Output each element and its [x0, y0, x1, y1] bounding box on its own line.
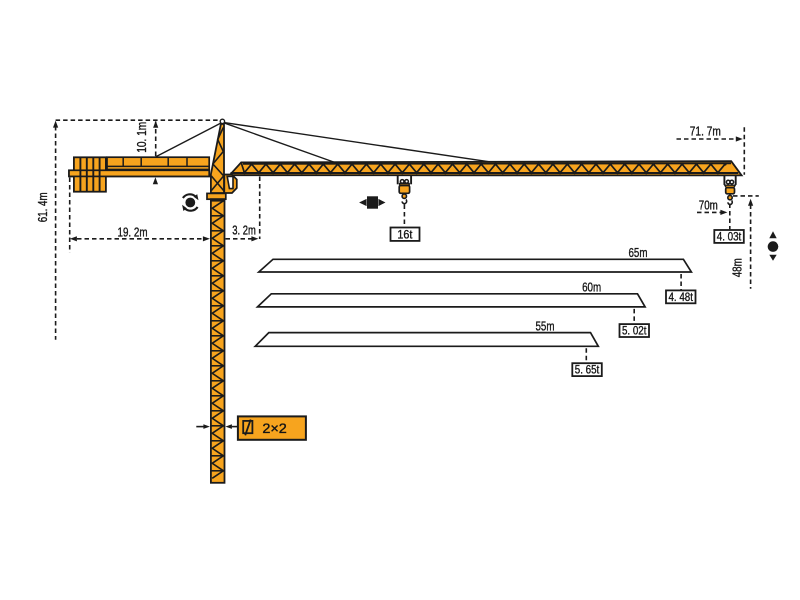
svg-text:70m: 70m [699, 198, 718, 213]
svg-text:10. 1m: 10. 1m [134, 122, 149, 153]
svg-text:16t: 16t [397, 227, 413, 241]
svg-text:19. 2m: 19. 2m [118, 224, 148, 239]
svg-text:4. 03t: 4. 03t [717, 229, 742, 243]
svg-text:48m: 48m [730, 258, 745, 277]
svg-text:2×2: 2×2 [262, 421, 287, 436]
svg-text:71. 7m: 71. 7m [690, 124, 721, 139]
svg-text:5. 65t: 5. 65t [575, 363, 600, 377]
svg-text:5. 02t: 5. 02t [622, 324, 647, 338]
svg-text:65m: 65m [629, 245, 648, 260]
svg-text:55m: 55m [536, 318, 555, 333]
svg-text:3. 2m: 3. 2m [232, 222, 256, 237]
svg-text:61. 4m: 61. 4m [35, 192, 50, 222]
svg-text:60m: 60m [582, 280, 601, 295]
svg-text:4. 48t: 4. 48t [668, 290, 693, 304]
